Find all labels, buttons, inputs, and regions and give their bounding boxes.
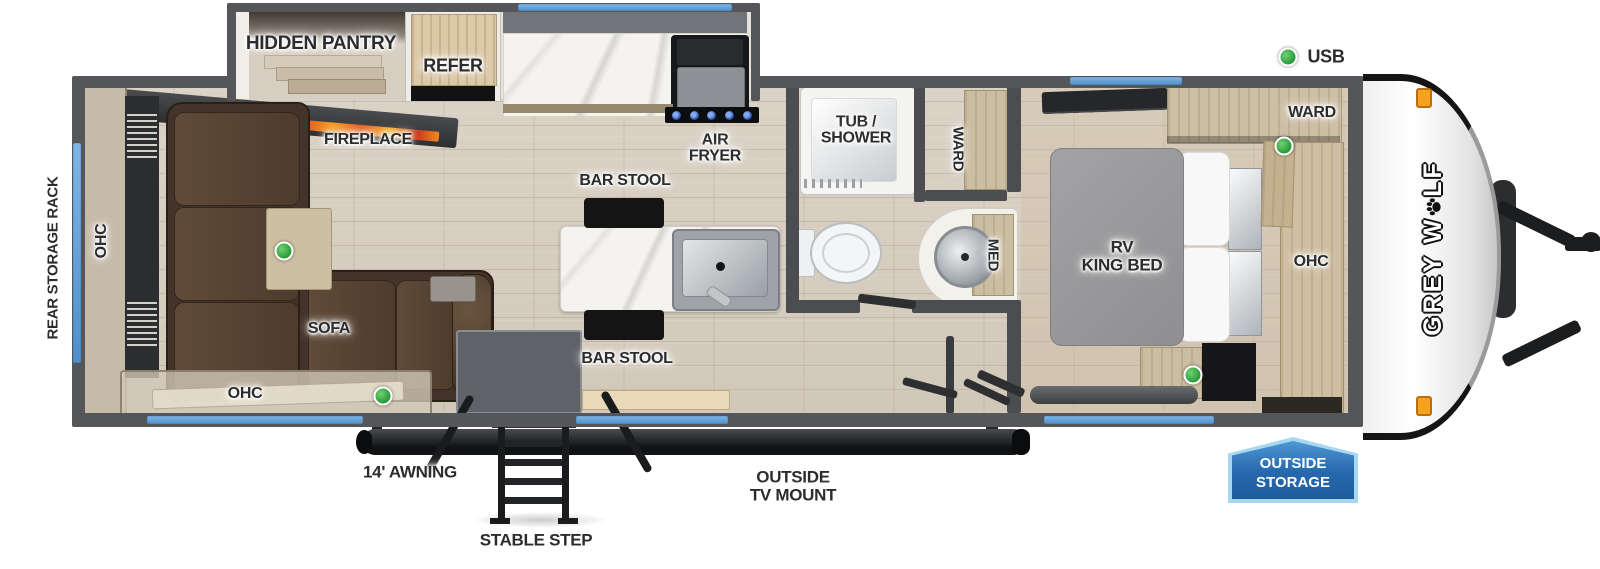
- range-top: [677, 39, 743, 65]
- ward-wall-bottom: [925, 190, 1007, 201]
- step-rung: [505, 497, 562, 504]
- bedroom-black-cabinet: [1202, 343, 1256, 401]
- outside-storage-badge: OUTSIDE STORAGE: [1228, 437, 1358, 503]
- floorplan-scene: GREY WLF OUTSIDE STORAGE HIDDEN PANTRYRE…: [0, 0, 1600, 569]
- air-fryer-range: [671, 35, 749, 113]
- sofa-console: [430, 276, 476, 302]
- bedroom-ohc-shadow: [1262, 397, 1342, 413]
- burner-icon: [672, 111, 681, 120]
- label-usb-legend: USB: [1307, 48, 1344, 67]
- tv-mount-post: [946, 336, 954, 414]
- slideout-wall-left: [227, 3, 236, 101]
- label-ohc-bedroom: OHC: [1294, 254, 1329, 270]
- label-air-fryer: AIR FRYER: [689, 133, 741, 166]
- window-bottom-left: [147, 416, 363, 424]
- window-bottom-middle: [576, 416, 728, 424]
- label-refer: REFER: [423, 57, 483, 76]
- range-door: [677, 67, 745, 111]
- logo-text-prefix: GREY W: [1419, 217, 1447, 336]
- bath-wall-bottom-right: [912, 300, 1021, 313]
- wolf-paw-icon: [1424, 197, 1444, 217]
- grey-wolf-logo: GREY WLF: [1419, 118, 1449, 378]
- wardrobe-mirror-lower: [1228, 251, 1262, 336]
- step-rail-left: [498, 426, 505, 522]
- burner-icon: [707, 111, 716, 120]
- sofa-cushion: [174, 112, 300, 206]
- wardrobe-mirror-upper: [1228, 168, 1262, 250]
- counter-front-edge: [503, 104, 673, 113]
- ward-closet-panel: [964, 90, 1008, 190]
- pantry-step: [288, 79, 386, 94]
- bath-wall-left: [786, 84, 799, 313]
- burner-icon: [690, 111, 699, 120]
- label-hidden-pantry: HIDDEN PANTRY: [246, 34, 396, 54]
- step-foot-right: [558, 518, 578, 524]
- label-bar-stool-top: BAR STOOL: [579, 173, 670, 189]
- front-cap-group: GREY WLF: [1363, 60, 1600, 440]
- usb-dot-bedroom-ward: [1275, 137, 1294, 156]
- hidden-pantry-bay: [236, 10, 408, 99]
- awning-endcap-left: [356, 430, 372, 454]
- label-tub-shower: TUB / SHOWER: [821, 115, 891, 148]
- badge-line1: OUTSIDE: [1228, 455, 1358, 474]
- sink-basin: [682, 239, 768, 297]
- logo-text-suffix: LF: [1419, 160, 1447, 197]
- window-bedroom-bottom: [1044, 416, 1214, 424]
- shower-door-track: [804, 179, 862, 188]
- window-slideout: [518, 4, 732, 11]
- step-rung: [505, 459, 562, 466]
- label-rear-storage-rack: REAR STORAGE RACK: [45, 177, 60, 340]
- step-rail-right: [562, 426, 569, 522]
- bed-draft-tube: [1030, 386, 1198, 404]
- wall-top-left: [72, 76, 232, 88]
- kitchen-backsplash: [503, 11, 747, 35]
- hitch-coupler: [1581, 232, 1600, 252]
- burner-icon: [725, 111, 734, 120]
- toilet-seat-ring: [822, 233, 870, 273]
- bar-stool-top: [584, 198, 664, 228]
- bedroom-partition-upper: [1007, 84, 1021, 192]
- label-ward-bath: WARD: [950, 127, 965, 172]
- label-stable-step: STABLE STEP: [480, 531, 593, 549]
- bar-stool-bottom: [584, 310, 664, 340]
- step-foot-left: [490, 518, 510, 524]
- window-bedroom-top: [1070, 77, 1182, 85]
- label-bar-stool-bottom: BAR STOOL: [581, 351, 672, 367]
- hitch-arm-lower: [1501, 319, 1582, 368]
- bed-pillow-bottom: [1178, 247, 1230, 342]
- badge-line2: STORAGE: [1228, 474, 1358, 493]
- wall-top-right: [756, 76, 1363, 88]
- label-ohc-bottom: OHC: [228, 386, 263, 402]
- marker-light-bottom: [1416, 396, 1432, 416]
- badge-text: OUTSIDE STORAGE: [1228, 455, 1358, 493]
- label-awning: 14' AWNING: [363, 463, 457, 481]
- awning-endcap-right: [1012, 429, 1030, 455]
- slideout-wall-right: [751, 3, 760, 101]
- bath-sink-drain: [961, 253, 969, 261]
- wall-front-right: [1348, 76, 1363, 425]
- burner-strip: [665, 107, 759, 123]
- step-rung: [505, 478, 562, 485]
- bath-wall-divider: [914, 84, 925, 202]
- usb-dot-legend: [1279, 48, 1298, 67]
- label-med: MED: [985, 239, 1000, 271]
- step-rung: [505, 440, 562, 447]
- refrigerator-base-gap: [411, 86, 495, 101]
- bed-pillow-top: [1178, 152, 1230, 246]
- bedroom-tv: [1042, 88, 1169, 114]
- ohc-shelf-board: [152, 381, 405, 410]
- bath-wall-bottom-left: [786, 300, 860, 313]
- label-outside-tv-mount: OUTSIDE TV MOUNT: [750, 469, 836, 504]
- rear-tv: [125, 96, 159, 378]
- stable-step: [460, 390, 620, 530]
- burner-icon: [743, 111, 752, 120]
- kitchen-sink: [672, 229, 780, 311]
- window-rear: [73, 143, 81, 363]
- speaker-slats-bottom: [127, 300, 157, 346]
- speaker-slats-top: [127, 112, 157, 158]
- label-sofa: SOFA: [308, 321, 350, 337]
- usb-dot-bedroom-nightstand: [1184, 366, 1203, 385]
- usb-dot-living-ohc: [374, 387, 393, 406]
- toilet-bowl: [810, 222, 882, 284]
- pantry-sidewall: [236, 10, 249, 99]
- label-fireplace: FIREPLACE: [324, 132, 412, 148]
- label-rv-king-bed: RV KING BED: [1082, 239, 1163, 274]
- label-ohc-left: OHC: [94, 224, 110, 259]
- sink-drain: [716, 262, 725, 271]
- label-ward-bedroom: WARD: [1288, 105, 1336, 121]
- marker-light-top: [1416, 88, 1432, 108]
- usb-dot-living-table: [275, 242, 294, 261]
